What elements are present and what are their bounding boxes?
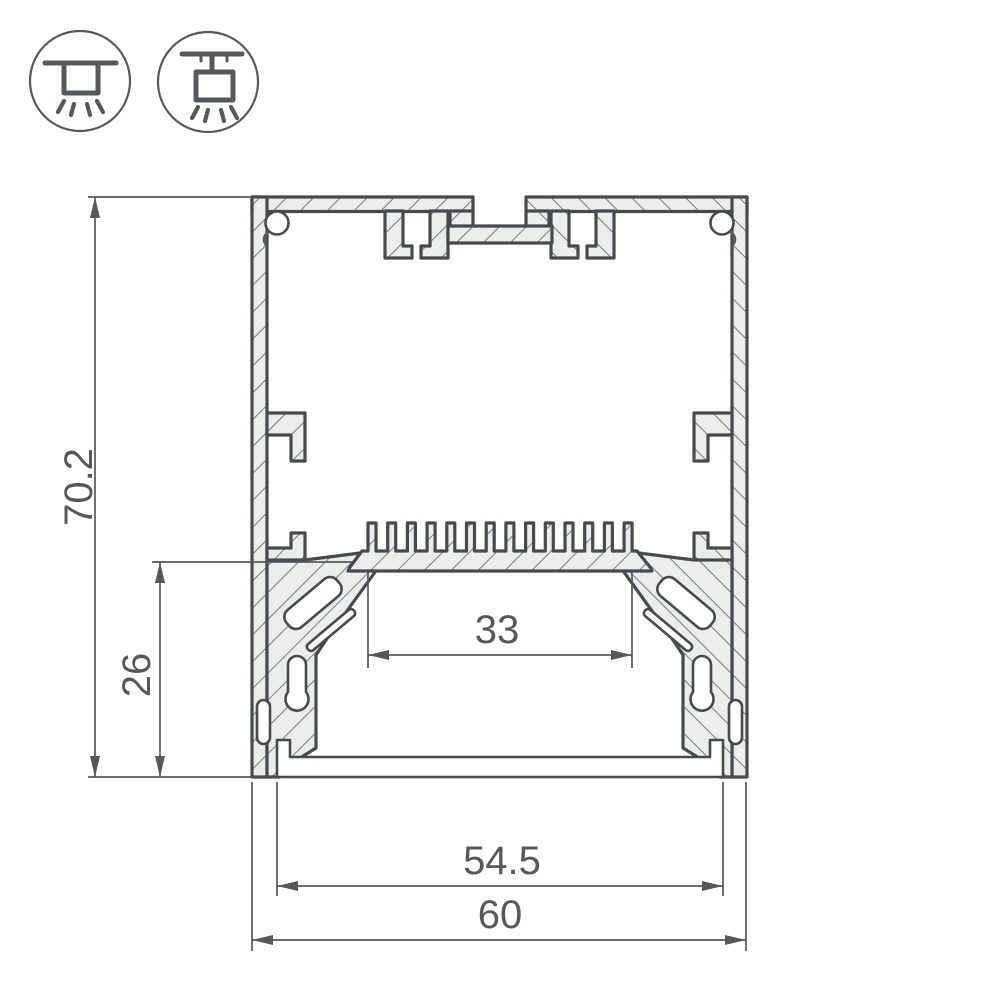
top-bridge-plate (448, 226, 552, 243)
side-wall (252, 197, 267, 777)
dimension-inner-width: 54.5 (277, 782, 723, 896)
dimension-label: 26 (115, 653, 159, 698)
corner-screw-boss (266, 212, 289, 235)
screw-leg (421, 211, 448, 258)
profile-left-half (252, 197, 473, 777)
dimension-label: 33 (475, 608, 520, 652)
mount-type-icons (30, 31, 258, 132)
pendant-light-icon (158, 32, 258, 132)
dimension-label: 70.2 (57, 448, 101, 526)
dimension-label: 54.5 (463, 839, 541, 883)
dimension-led-platform-width: 33 (368, 572, 632, 668)
led-profile-technical-drawing: 70.2 26 33 54.5 60 (0, 0, 1000, 1000)
profile-right-half (526, 197, 747, 777)
screw-leg (385, 211, 412, 258)
diffuser-plate (277, 740, 723, 777)
foot-channel (257, 700, 270, 744)
upper-bracket (267, 413, 305, 461)
profile-cross-section (252, 197, 747, 777)
dimension-label: 60 (478, 893, 523, 937)
surface-mount-light-icon (30, 31, 130, 131)
keyhole-screw-channel (286, 656, 309, 711)
top-wall (252, 197, 473, 212)
lower-bracket (267, 533, 305, 562)
heatsink-fin-plate (348, 523, 652, 571)
